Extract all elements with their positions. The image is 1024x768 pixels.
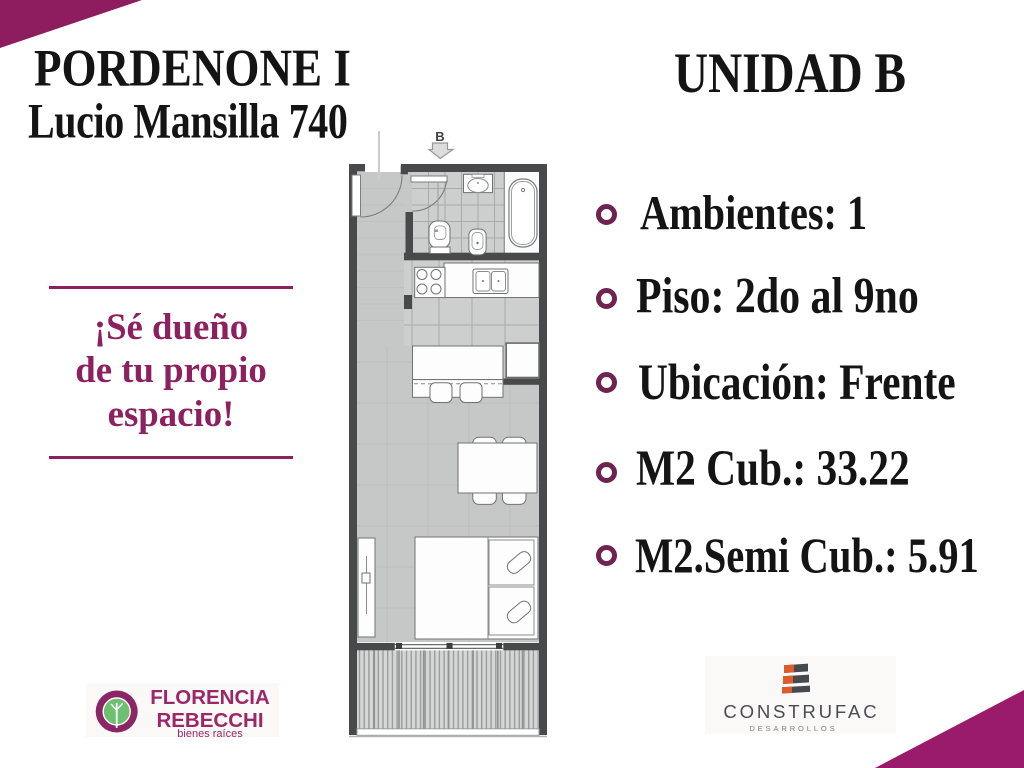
- svg-text:B: B: [435, 129, 444, 144]
